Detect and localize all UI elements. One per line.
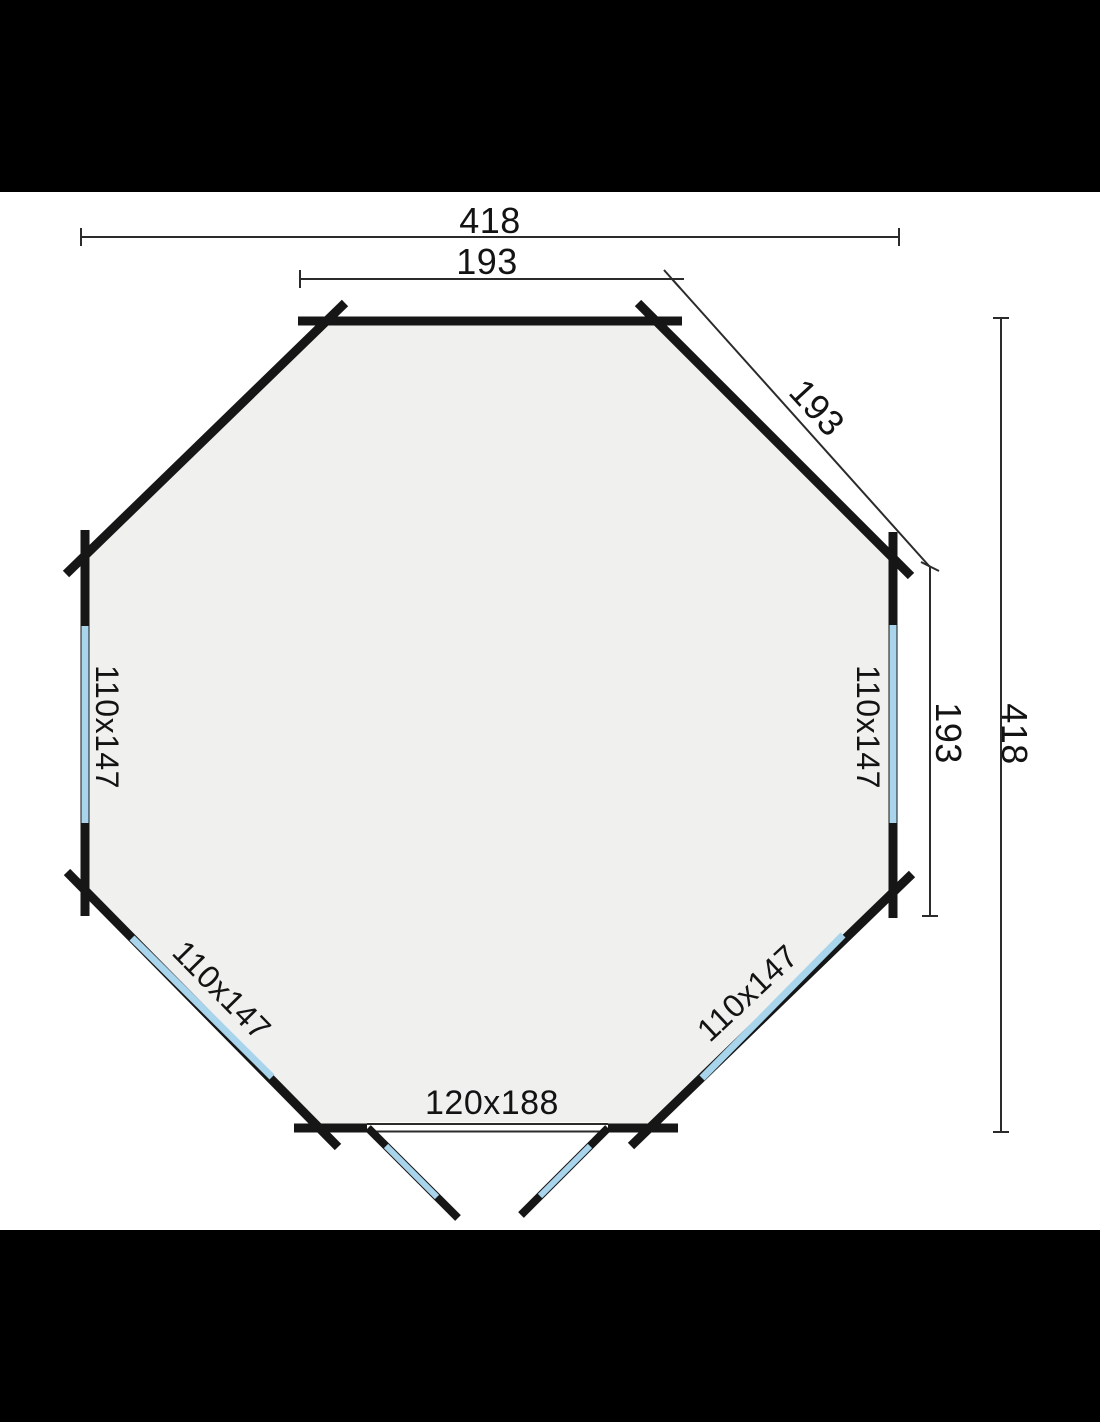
dim-label-overall-width: 418 — [459, 200, 521, 241]
window-label-right: 110x147 — [850, 665, 886, 789]
door-leaf-right-glass — [540, 1146, 590, 1196]
dim-label-overall-depth: 418 — [994, 703, 1035, 765]
dim-label-side-edge: 193 — [928, 702, 969, 764]
floor-plan-canvas: 418 193 193 193 418 110x147 110x147 110x… — [0, 0, 1100, 1422]
letterbox-top — [0, 0, 1100, 192]
door-label: 120x188 — [425, 1084, 559, 1122]
window-label-left: 110x147 — [89, 665, 125, 789]
dim-label-diagonal-edge: 193 — [781, 371, 853, 444]
door-leaves — [368, 1128, 608, 1218]
letterbox-bottom — [0, 1230, 1100, 1422]
floor-plan-svg: 418 193 193 193 418 110x147 110x147 110x… — [0, 0, 1100, 1422]
dim-label-front-edge: 193 — [456, 241, 518, 282]
door-leaf-left-glass — [386, 1146, 437, 1197]
